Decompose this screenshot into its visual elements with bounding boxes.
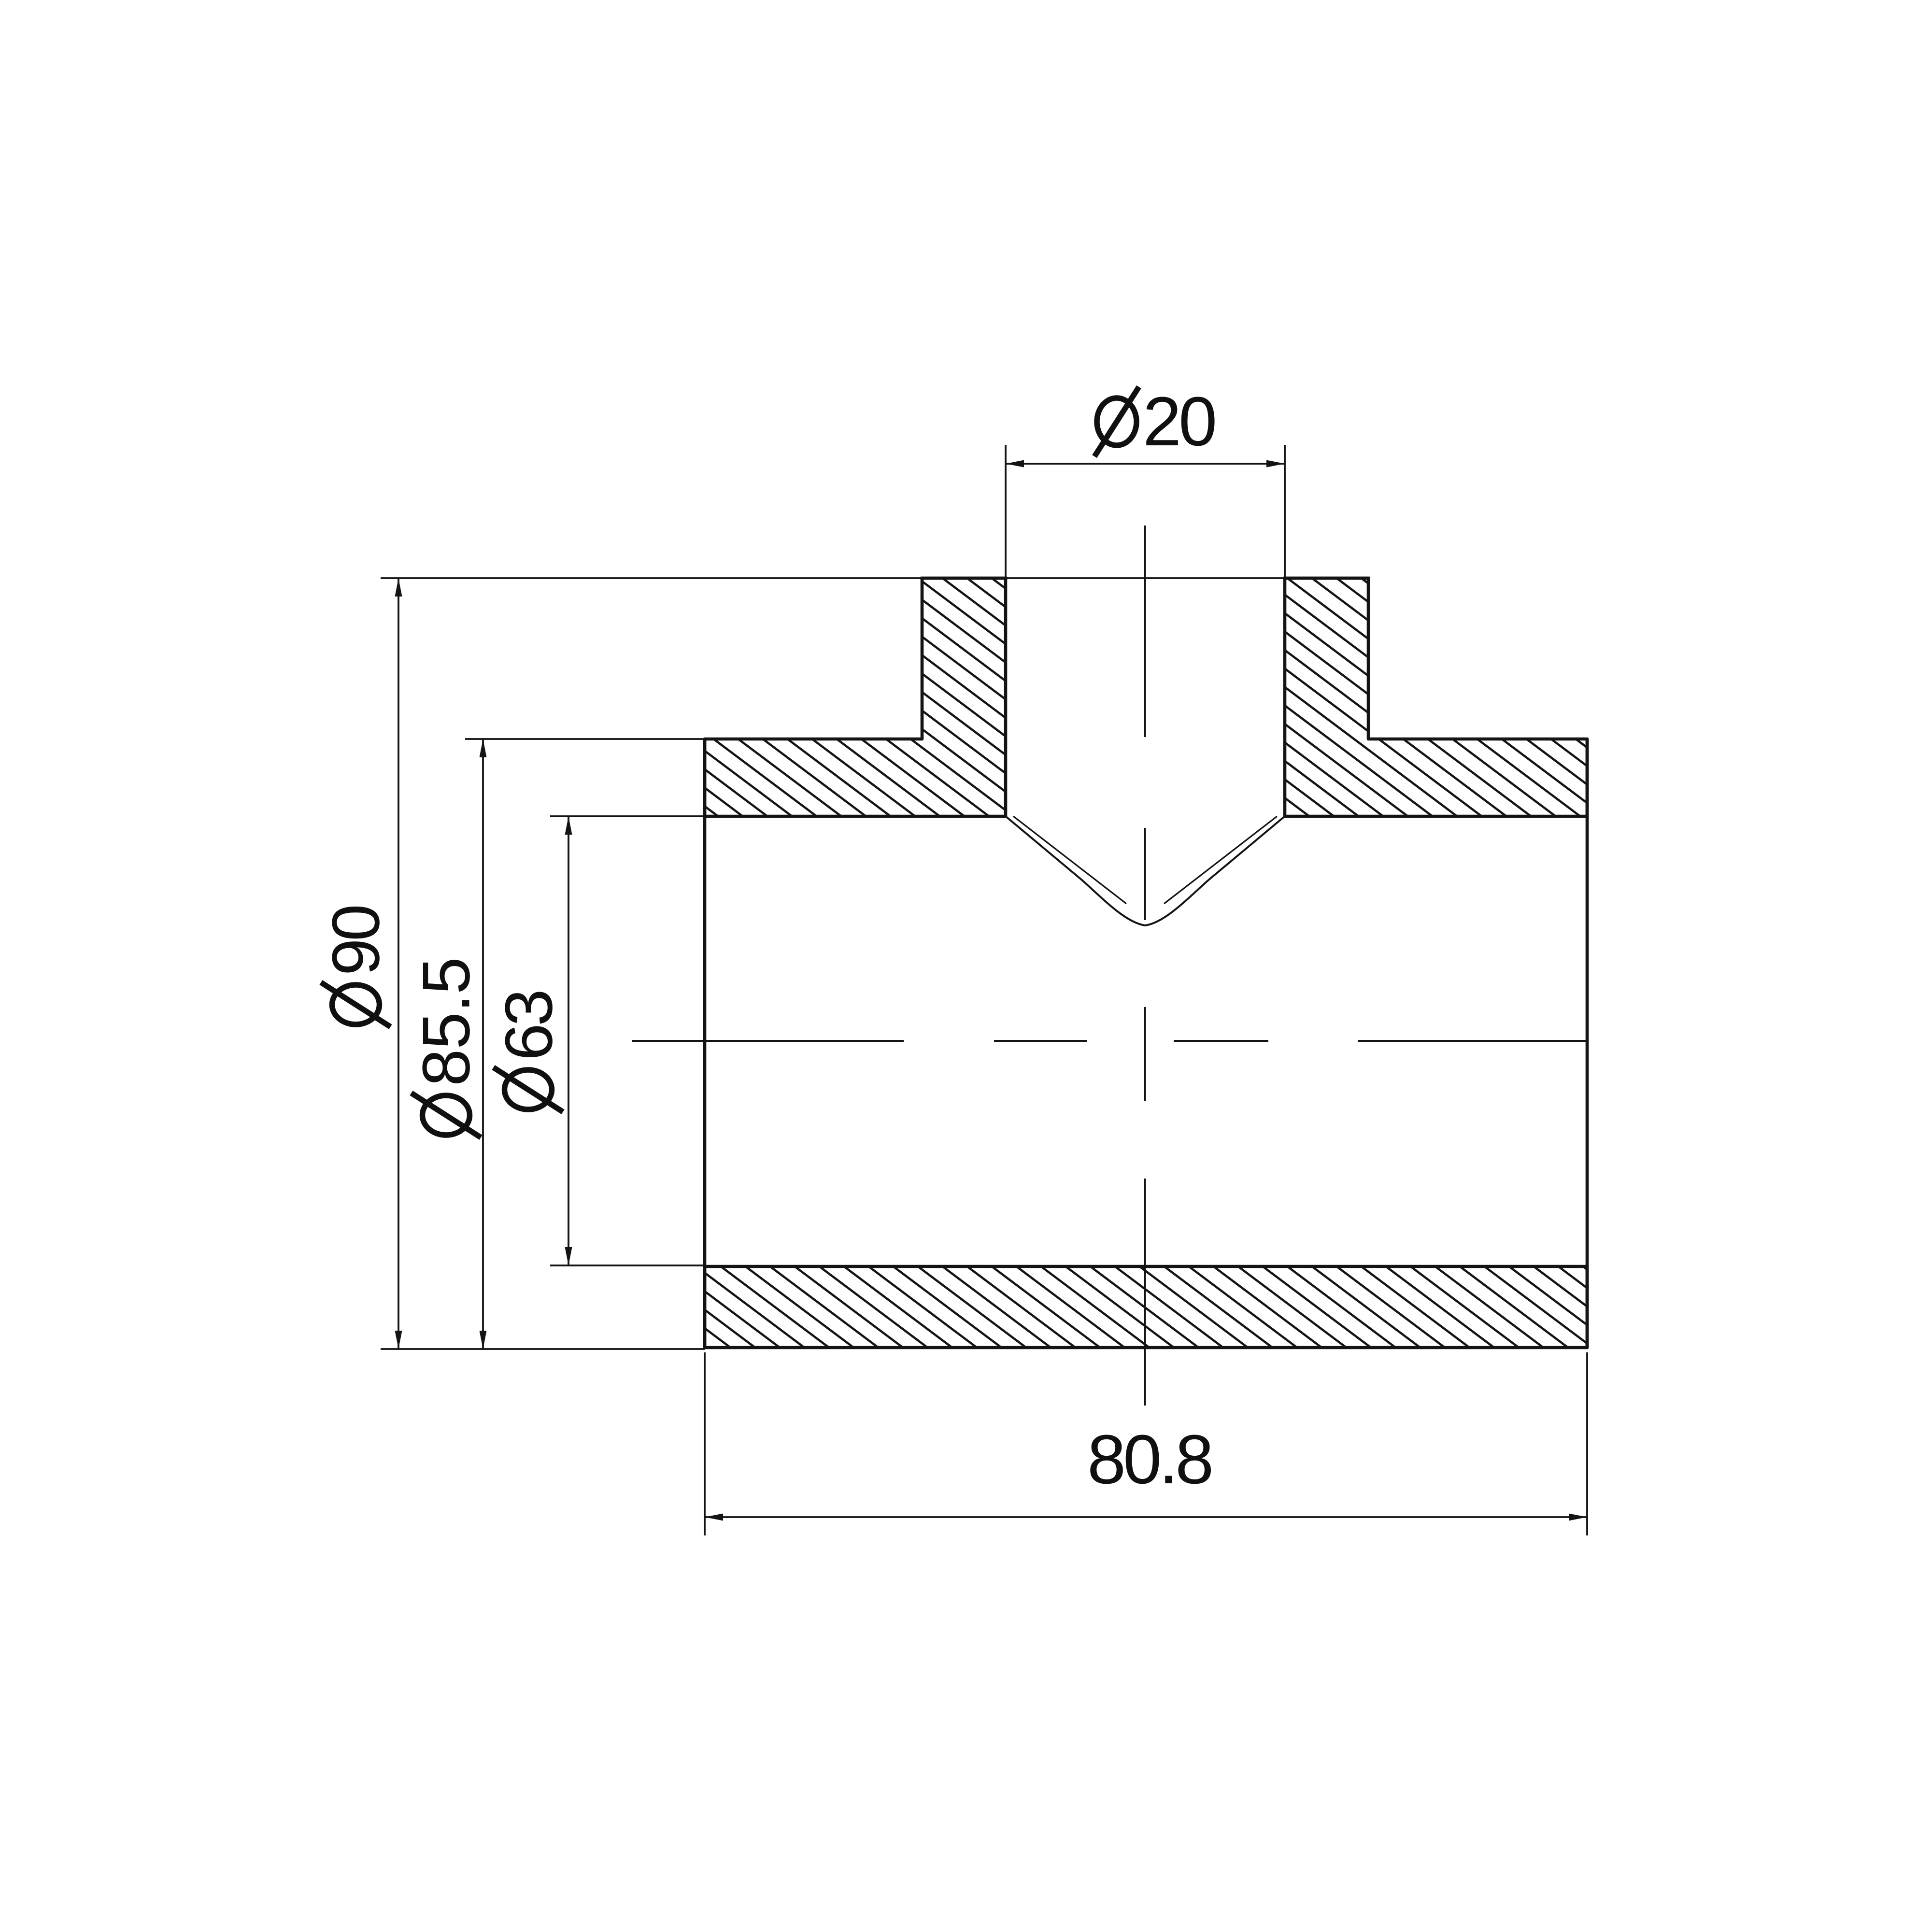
- svg-text:20: 20: [1143, 383, 1215, 460]
- svg-text:63: 63: [492, 992, 567, 1061]
- svg-text:80.8: 80.8: [1087, 1421, 1211, 1498]
- svg-text:85.5: 85.5: [409, 957, 484, 1086]
- svg-text:90: 90: [319, 907, 394, 976]
